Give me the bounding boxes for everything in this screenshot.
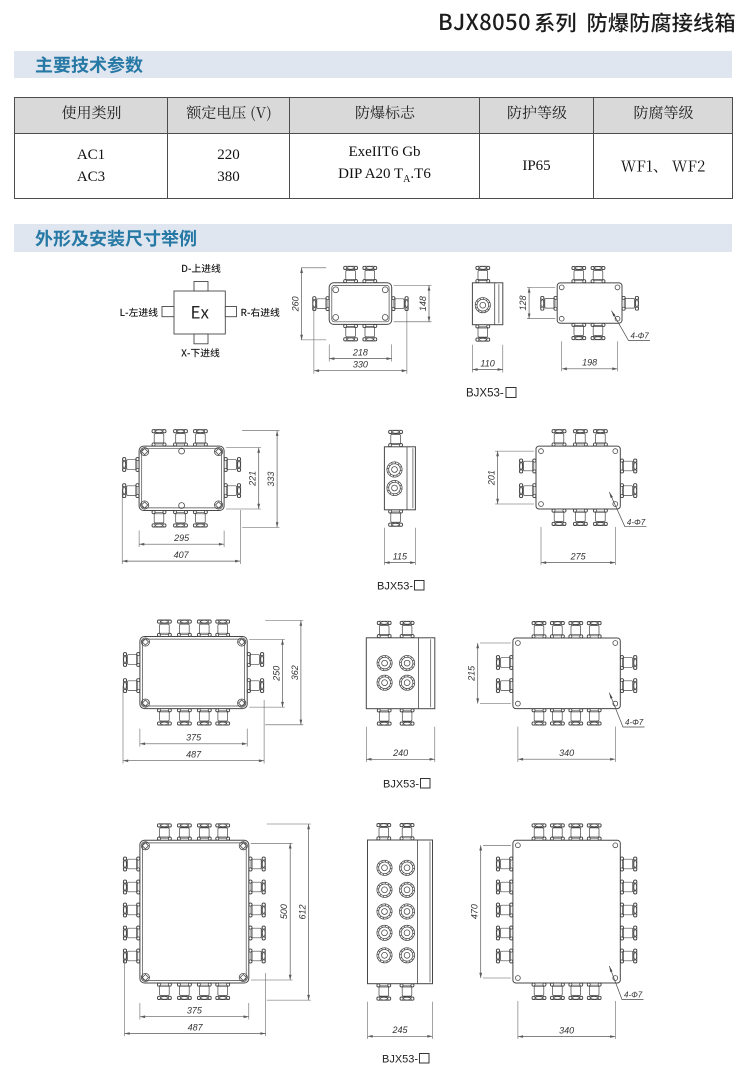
svg-text:BJX53-: BJX53- bbox=[383, 779, 419, 791]
svg-text:215: 215 bbox=[467, 665, 477, 682]
svg-text:333: 333 bbox=[266, 472, 276, 487]
svg-text:295: 295 bbox=[173, 533, 190, 543]
svg-text:4-Φ7: 4-Φ7 bbox=[624, 991, 643, 1000]
svg-text:BJX53-: BJX53- bbox=[466, 388, 504, 400]
svg-text:218: 218 bbox=[352, 347, 368, 357]
svg-text:240: 240 bbox=[392, 748, 408, 758]
svg-text:375: 375 bbox=[187, 1006, 203, 1016]
svg-text:128: 128 bbox=[518, 295, 528, 310]
svg-text:4-Φ7: 4-Φ7 bbox=[631, 332, 650, 341]
svg-text:612: 612 bbox=[298, 904, 308, 919]
svg-text:BJX53-: BJX53- bbox=[382, 1054, 418, 1066]
svg-text:407: 407 bbox=[174, 550, 190, 560]
svg-text:245: 245 bbox=[391, 1025, 408, 1035]
svg-text:340: 340 bbox=[559, 1025, 574, 1035]
svg-text:BJX53-: BJX53- bbox=[377, 581, 413, 593]
svg-text:340: 340 bbox=[559, 748, 574, 758]
svg-text:487: 487 bbox=[186, 750, 202, 760]
svg-text:221: 221 bbox=[248, 471, 258, 487]
svg-text:115: 115 bbox=[393, 551, 408, 561]
svg-text:250: 250 bbox=[272, 666, 282, 682]
svg-text:148: 148 bbox=[418, 296, 428, 311]
svg-text:330: 330 bbox=[353, 360, 368, 370]
svg-text:198: 198 bbox=[582, 358, 597, 368]
svg-text:470: 470 bbox=[470, 904, 480, 919]
svg-text:4-Φ7: 4-Φ7 bbox=[627, 518, 646, 527]
svg-text:4-Φ7: 4-Φ7 bbox=[625, 718, 644, 727]
svg-text:375: 375 bbox=[186, 733, 202, 743]
svg-text:487: 487 bbox=[188, 1022, 204, 1032]
svg-text:260: 260 bbox=[291, 296, 301, 312]
svg-text:275: 275 bbox=[570, 551, 587, 561]
svg-text:110: 110 bbox=[480, 358, 494, 368]
svg-text:500: 500 bbox=[279, 904, 289, 919]
svg-text:201: 201 bbox=[487, 470, 497, 486]
svg-text:362: 362 bbox=[290, 665, 300, 680]
